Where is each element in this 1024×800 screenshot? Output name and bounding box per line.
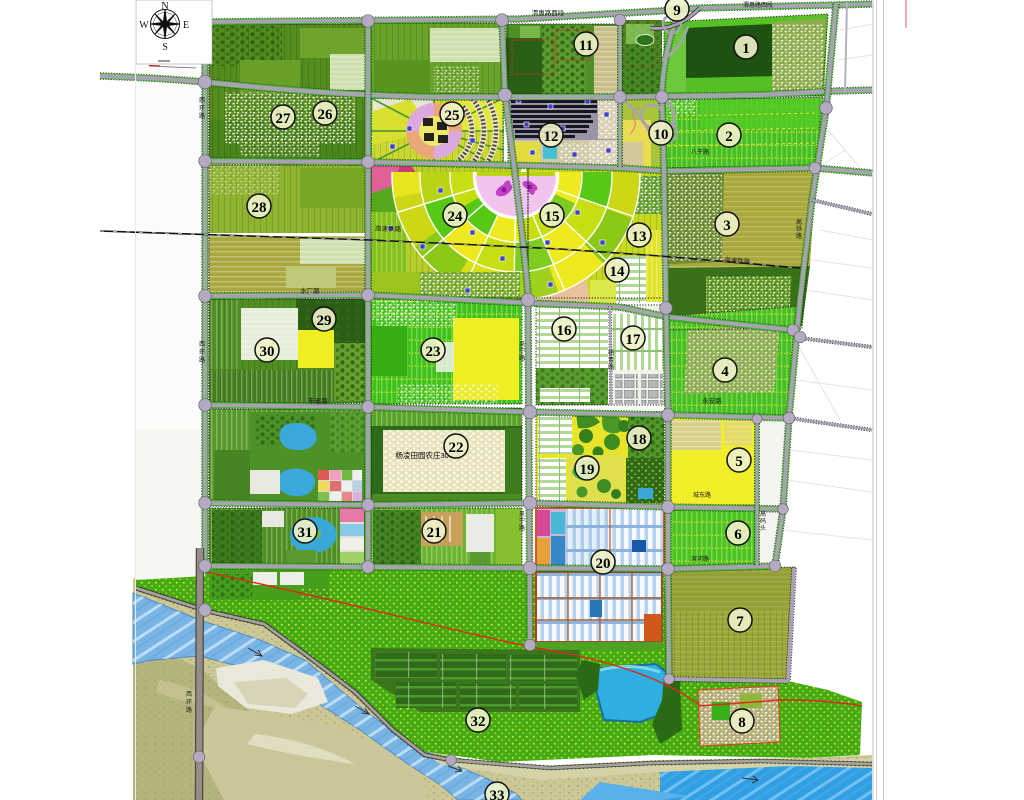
svg-text:26: 26 <box>318 107 334 123</box>
svg-text:2: 2 <box>725 129 733 145</box>
svg-text:29: 29 <box>317 313 332 329</box>
svg-text:7: 7 <box>736 614 744 630</box>
svg-text:高码头: 高码头 <box>760 510 766 532</box>
svg-text:N: N <box>161 1 168 12</box>
svg-text:6: 6 <box>734 527 742 543</box>
svg-text:朱雀路: 朱雀路 <box>308 396 328 405</box>
svg-text:杨青路: 杨青路 <box>608 349 614 371</box>
svg-text:西环路: 西环路 <box>186 691 192 714</box>
svg-text:16: 16 <box>557 323 573 339</box>
svg-text:14: 14 <box>610 264 626 280</box>
svg-text:S: S <box>162 42 168 53</box>
svg-text:吴宁路: 吴宁路 <box>519 511 525 532</box>
svg-text:3: 3 <box>723 218 731 234</box>
svg-text:20: 20 <box>596 556 611 572</box>
svg-text:9: 9 <box>673 3 681 19</box>
svg-text:11: 11 <box>579 38 593 54</box>
svg-text:西环路: 西环路 <box>199 97 205 120</box>
svg-text:西环路: 西环路 <box>199 341 205 364</box>
svg-text:12: 12 <box>544 129 559 145</box>
svg-text:18: 18 <box>632 432 647 448</box>
svg-text:高铁路: 高铁路 <box>796 218 802 240</box>
svg-text:17: 17 <box>626 332 642 348</box>
svg-text:滨河路: 滨河路 <box>691 555 709 563</box>
svg-text:1: 1 <box>742 41 750 57</box>
svg-text:8: 8 <box>738 715 746 731</box>
svg-text:永安路: 永安路 <box>702 396 722 405</box>
svg-text:31: 31 <box>298 525 313 541</box>
svg-text:渭惠路西段: 渭惠路西段 <box>532 8 565 17</box>
svg-text:吴宁路: 吴宁路 <box>519 341 525 362</box>
svg-text:24: 24 <box>448 209 464 225</box>
svg-text:W: W <box>139 20 149 31</box>
svg-text:27: 27 <box>276 111 292 127</box>
svg-text:渭惠路西段: 渭惠路西段 <box>743 1 773 9</box>
svg-text:30: 30 <box>260 344 275 360</box>
svg-text:城东路: 城东路 <box>693 491 711 499</box>
svg-text:4: 4 <box>721 364 729 380</box>
svg-text:32: 32 <box>471 714 486 730</box>
svg-text:25: 25 <box>445 108 460 124</box>
svg-text:23: 23 <box>426 344 441 360</box>
svg-text:19: 19 <box>580 462 595 478</box>
svg-text:22: 22 <box>449 440 464 456</box>
svg-text:10: 10 <box>654 127 669 143</box>
svg-text:33: 33 <box>490 788 505 800</box>
svg-text:E: E <box>183 20 189 31</box>
svg-text:八干路: 八干路 <box>691 148 709 156</box>
svg-text:13: 13 <box>632 229 647 245</box>
svg-text:21: 21 <box>427 525 442 541</box>
svg-text:15: 15 <box>545 209 560 225</box>
svg-text:水厂路: 水厂路 <box>300 286 320 295</box>
svg-text:5: 5 <box>735 454 743 470</box>
svg-text:28: 28 <box>252 200 267 216</box>
